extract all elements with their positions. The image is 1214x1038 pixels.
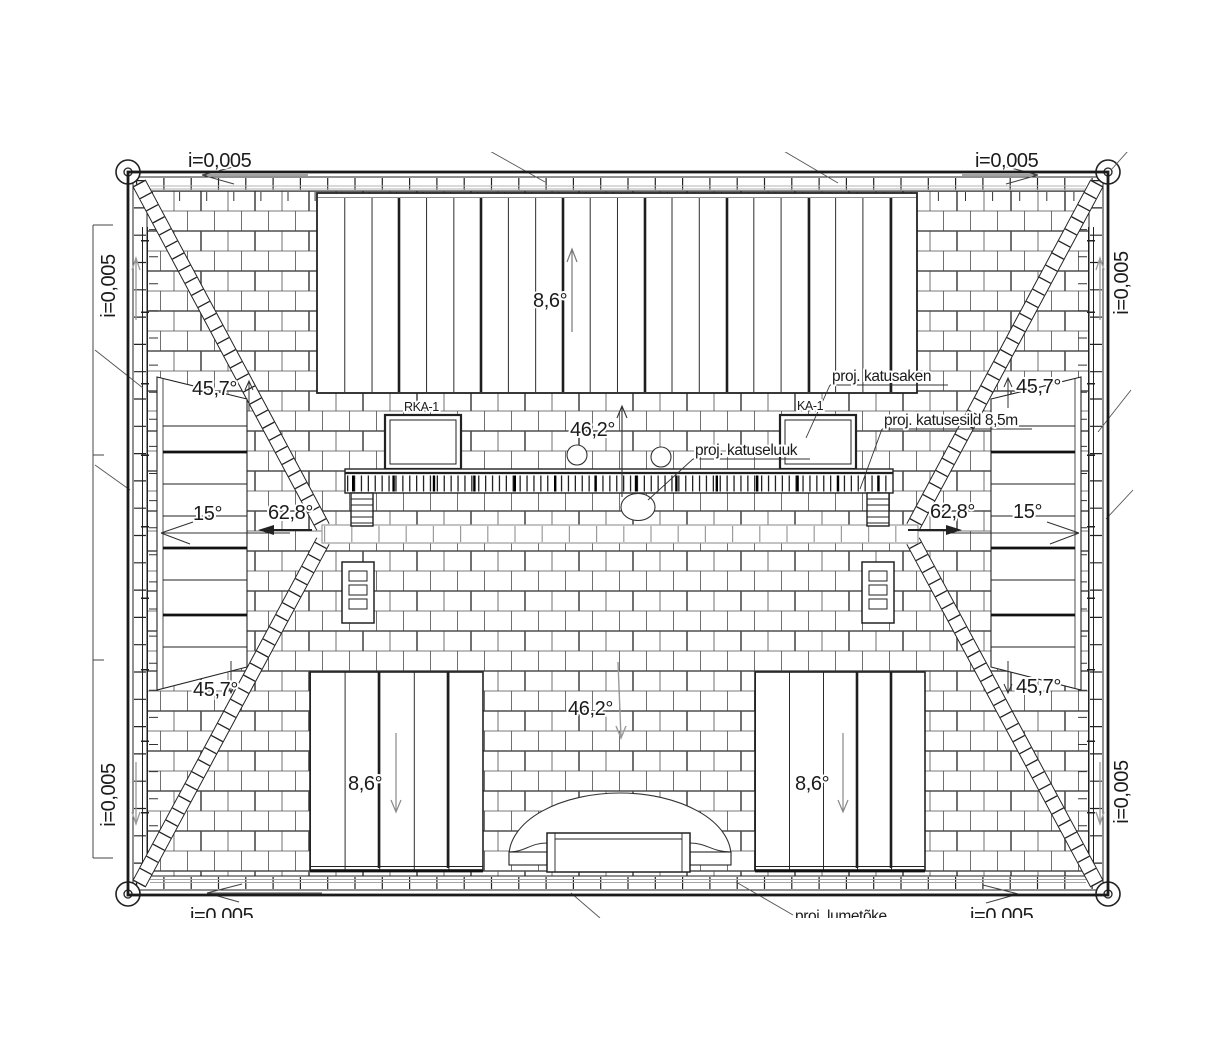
callout-roof-window: proj. katusaken (832, 368, 931, 385)
angle-main-lower: 46,2° (568, 698, 613, 720)
roof-ladder-left (351, 493, 373, 526)
top-dormer-roof (317, 193, 917, 393)
angle-bottom-dormer-right: 8,6° (795, 773, 829, 795)
roof-ladder-right (867, 493, 889, 526)
angle-corner-bottom-right: 45,7° (1016, 676, 1061, 698)
chimney-box-left (342, 562, 374, 623)
eaves-label-top-left: i=0,005 (188, 150, 252, 172)
roof-plan-drawing: proj. katusaken proj. katuseluuk proj. k… (0, 0, 1214, 1038)
angle-bottom-dormer-left: 8,6° (348, 773, 382, 795)
angle-main-upper: 46,2° (570, 419, 615, 441)
eaves-label-right-top: i=0,005 (1111, 251, 1133, 315)
chimney-box-right (862, 562, 894, 623)
bottom-dormer-right (755, 672, 925, 871)
skylight-rka1 (385, 415, 461, 469)
angle-corner-bottom-left: 45,7° (193, 679, 238, 701)
roof-hatch-opening (621, 494, 655, 521)
angle-corner-top-right: 45,7° (1016, 376, 1061, 398)
callout-roof-bridge: proj. katusesild 8,5m (884, 412, 1018, 429)
angle-top-dormer: 8,6° (533, 290, 567, 312)
angle-side-right: 15° (1013, 501, 1042, 523)
skylight-label-rka1: RKA-1 (404, 400, 439, 414)
eaves-label-right-bottom: i=0,005 (1111, 760, 1133, 824)
main-ridge (322, 525, 918, 543)
eaves-label-top-right: i=0,005 (975, 150, 1039, 172)
angle-hip-right: 62,8° (930, 501, 975, 523)
roof-plan-sheet: proj. katusaken proj. katuseluuk proj. k… (0, 0, 1214, 1038)
angle-hip-left: 62,8° (268, 502, 313, 524)
roof-bridge (345, 469, 893, 493)
angle-corner-top-left: 45,7° (192, 378, 237, 400)
angle-side-left: 15° (193, 503, 222, 525)
eaves-label-left-top: i=0,005 (98, 254, 120, 318)
callout-roof-hatch: proj. katuseluuk (695, 442, 798, 459)
skylight-label-ka1: KA-1 (797, 399, 824, 413)
eaves-label-left-bottom: i=0,005 (98, 763, 120, 827)
